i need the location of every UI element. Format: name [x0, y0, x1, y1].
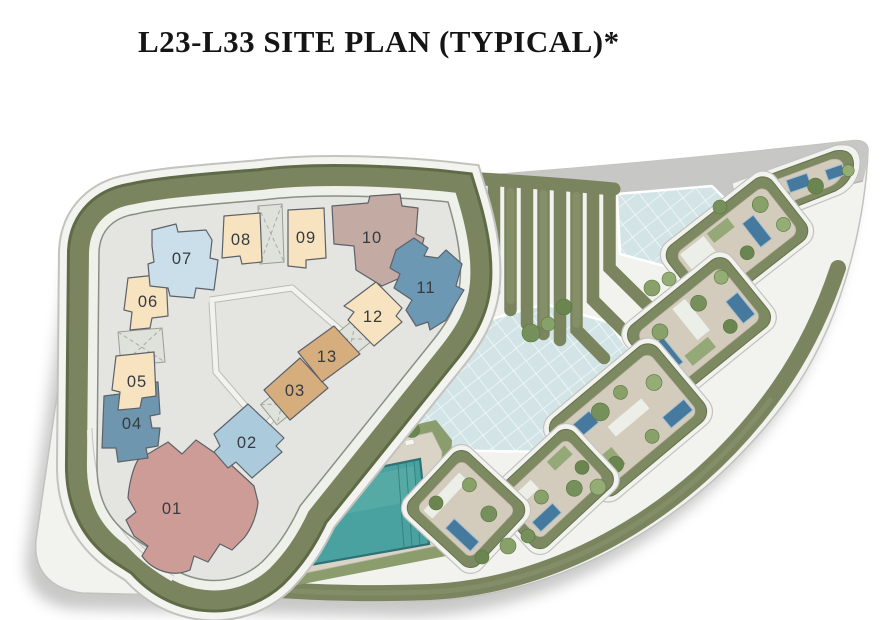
unit-12-label: 12: [363, 308, 383, 326]
unit-05-label: 05: [127, 373, 147, 391]
unit-02-label: 02: [237, 434, 257, 452]
site-plan-page: L23-L33 SITE PLAN (TYPICAL)*: [0, 0, 886, 620]
unit-13-label: 13: [317, 348, 337, 366]
unit-09-label: 09: [296, 229, 316, 247]
unit-08-label: 08: [231, 231, 251, 249]
unit-07-label: 07: [172, 250, 192, 268]
site-plan-graphic: 01 02 03 04 05 06 07 08 09 10 11 12 13: [0, 0, 886, 620]
unit-03-label: 03: [285, 382, 305, 400]
unit-01-label: 01: [162, 500, 182, 518]
unit-04-label: 04: [122, 415, 142, 433]
unit-06-label: 06: [138, 293, 158, 311]
unit-10-label: 10: [362, 229, 382, 247]
unit-11-label: 11: [416, 279, 435, 297]
